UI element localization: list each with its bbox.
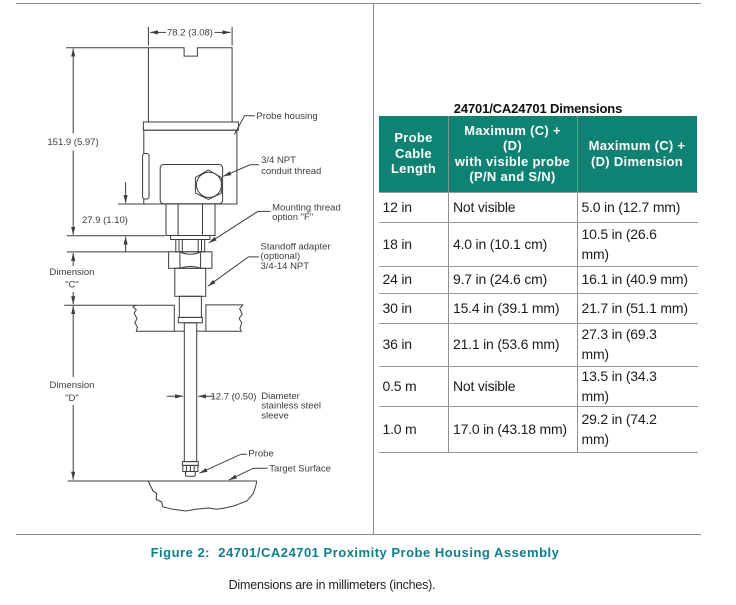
svg-text:151.9 (5.97): 151.9 (5.97) [47, 137, 98, 148]
svg-text:27.9 (1.10): 27.9 (1.10) [82, 215, 128, 226]
svg-text:78.2 (3.08): 78.2 (3.08) [167, 28, 213, 39]
svg-text:Probe housing: Probe housing [256, 111, 317, 122]
svg-text:Probe: Probe [248, 449, 273, 460]
svg-text:3/4-14 NPT: 3/4-14 NPT [261, 261, 310, 272]
svg-text:Dimension: Dimension [50, 380, 95, 391]
svg-text:"C": "C" [65, 280, 79, 291]
svg-text:"D": "D" [65, 393, 79, 404]
svg-text:Dimension: Dimension [50, 267, 95, 278]
svg-text:sleeve: sleeve [261, 410, 288, 421]
svg-text:option "F": option "F" [272, 212, 313, 223]
svg-text:conduit thread: conduit thread [261, 166, 321, 177]
svg-text:12.7 (0.50): 12.7 (0.50) [211, 391, 257, 402]
svg-text:Target Surface: Target Surface [269, 463, 331, 474]
svg-text:3/4 NPT: 3/4 NPT [261, 155, 296, 166]
